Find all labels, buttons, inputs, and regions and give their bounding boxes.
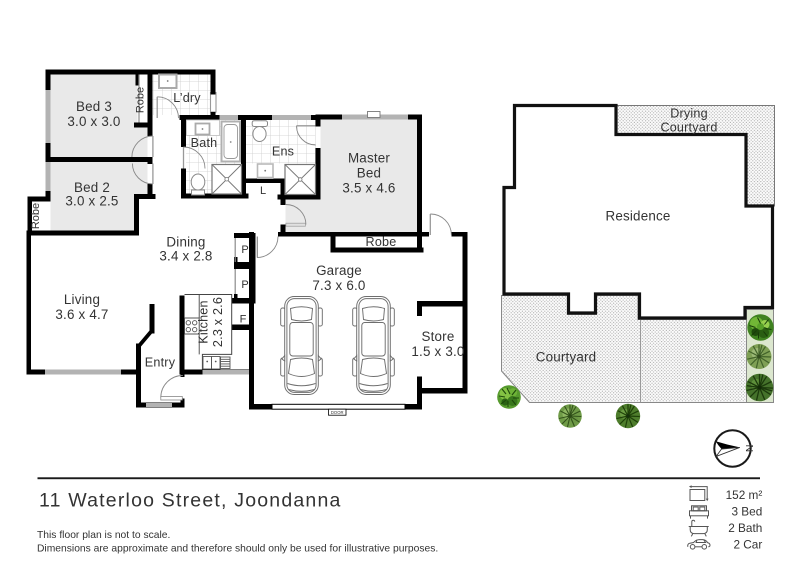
svg-text:Drying: Drying <box>670 107 708 121</box>
svg-text:11 Waterloo Street, Joondanna: 11 Waterloo Street, Joondanna <box>39 490 342 512</box>
svg-text:3.0 x 2.5: 3.0 x 2.5 <box>65 194 118 209</box>
svg-text:Dimensions are approximate and: Dimensions are approximate and therefore… <box>37 544 438 555</box>
svg-text:152 m²: 152 m² <box>726 488 763 502</box>
svg-text:2.3 x 2.6: 2.3 x 2.6 <box>211 297 225 347</box>
svg-text:Robe: Robe <box>30 203 42 229</box>
svg-text:3.4 x 2.8: 3.4 x 2.8 <box>159 249 212 264</box>
svg-text:P: P <box>241 279 248 291</box>
svg-text:3.0 x 3.0: 3.0 x 3.0 <box>67 114 120 129</box>
svg-text:Kitchen: Kitchen <box>197 300 211 343</box>
svg-text:Garage: Garage <box>316 263 362 278</box>
svg-text:2 Bath: 2 Bath <box>728 521 762 535</box>
svg-text:3.5 x 4.6: 3.5 x 4.6 <box>342 181 395 196</box>
svg-text:7.3 x 6.0: 7.3 x 6.0 <box>312 278 365 293</box>
svg-text:Store: Store <box>421 329 454 344</box>
svg-text:F: F <box>240 314 247 326</box>
svg-text:Bed: Bed <box>357 166 381 181</box>
svg-text:Bath: Bath <box>191 136 218 150</box>
svg-text:N: N <box>743 445 755 453</box>
svg-text:P: P <box>241 244 248 256</box>
svg-text:3.6 x 4.7: 3.6 x 4.7 <box>55 307 108 322</box>
svg-text:Robe: Robe <box>366 235 397 249</box>
svg-text:Courtyard: Courtyard <box>536 350 597 365</box>
svg-text:Residence: Residence <box>605 209 670 224</box>
svg-text:3 Bed: 3 Bed <box>731 505 762 519</box>
svg-text:Bed 3: Bed 3 <box>76 99 112 114</box>
svg-text:Entry: Entry <box>145 356 176 370</box>
svg-text:DOOR: DOOR <box>331 410 344 415</box>
svg-text:1.5 x 3.0: 1.5 x 3.0 <box>411 344 464 359</box>
svg-text:Courtyard: Courtyard <box>660 121 717 135</box>
svg-text:Living: Living <box>64 292 100 307</box>
svg-text:This floor plan is not to scal: This floor plan is not to scale. <box>37 530 170 541</box>
svg-text:Robe: Robe <box>135 87 147 113</box>
svg-text:Master: Master <box>348 151 390 166</box>
svg-text:2 Car: 2 Car <box>733 538 762 552</box>
svg-text:L: L <box>260 185 266 197</box>
svg-text:Ens: Ens <box>272 145 294 159</box>
svg-text:Dining: Dining <box>166 235 205 250</box>
svg-text:L’dry: L’dry <box>173 91 201 105</box>
